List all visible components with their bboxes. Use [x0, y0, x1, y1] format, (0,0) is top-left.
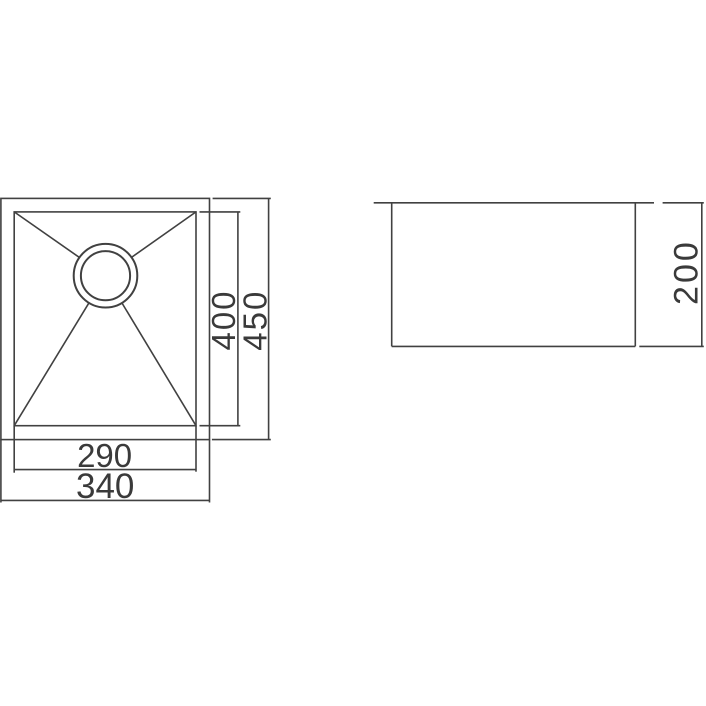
svg-text:200: 200	[667, 239, 705, 305]
svg-text:450: 450	[237, 290, 274, 351]
svg-text:340: 340	[76, 467, 134, 506]
